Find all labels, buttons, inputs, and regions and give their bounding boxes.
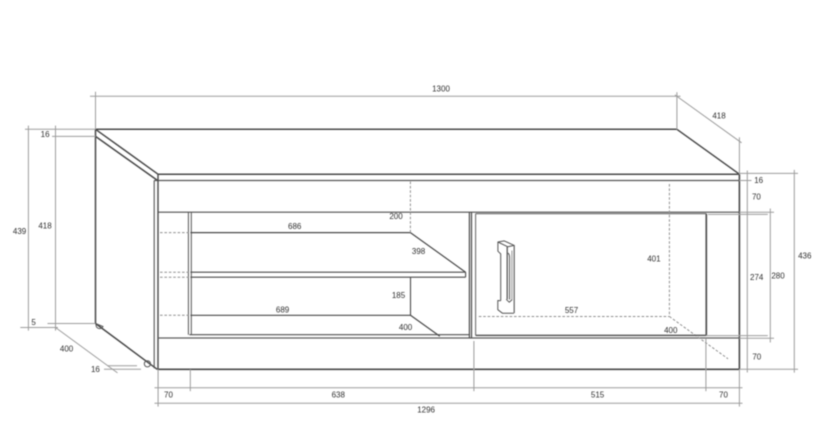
svg-text:439: 439 (13, 227, 27, 236)
svg-text:557: 557 (565, 306, 579, 315)
svg-text:274: 274 (750, 273, 764, 282)
svg-text:400: 400 (60, 345, 74, 354)
svg-text:398: 398 (412, 247, 426, 256)
svg-text:436: 436 (798, 252, 812, 261)
svg-text:418: 418 (712, 112, 726, 121)
svg-text:1300: 1300 (432, 85, 450, 94)
svg-text:400: 400 (664, 326, 678, 335)
svg-text:515: 515 (591, 390, 605, 399)
svg-text:280: 280 (771, 272, 785, 281)
svg-text:1296: 1296 (417, 406, 435, 415)
svg-text:70: 70 (752, 352, 761, 361)
svg-text:200: 200 (389, 212, 403, 221)
svg-text:16: 16 (41, 130, 50, 139)
svg-text:401: 401 (647, 254, 661, 263)
svg-text:686: 686 (288, 222, 302, 231)
svg-text:400: 400 (399, 323, 413, 332)
svg-text:5: 5 (31, 318, 36, 327)
svg-text:16: 16 (91, 365, 100, 374)
svg-text:70: 70 (164, 390, 173, 399)
svg-text:185: 185 (392, 291, 406, 300)
svg-text:70: 70 (719, 391, 728, 400)
svg-text:70: 70 (752, 193, 761, 202)
svg-text:418: 418 (38, 221, 52, 230)
svg-text:638: 638 (332, 391, 346, 400)
svg-text:16: 16 (754, 176, 763, 185)
svg-text:689: 689 (276, 306, 290, 315)
